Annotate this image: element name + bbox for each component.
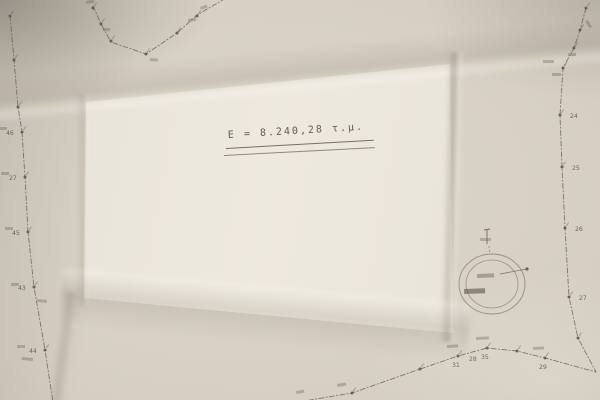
illegible-mark	[150, 58, 158, 62]
illegible-mark	[296, 390, 304, 394]
right-boundary-line	[560, 8, 596, 372]
survey-plan-photo: 46274543442425262731352928 E = 8.240,28 …	[0, 0, 600, 400]
survey-point-tick	[102, 19, 104, 23]
illegible-mark	[476, 336, 489, 340]
survey-point-tick	[459, 351, 461, 355]
survey-point-tick	[23, 127, 25, 131]
detail-illegible-text	[464, 288, 485, 294]
detail-leader-dash	[489, 246, 490, 254]
survey-point-tick	[112, 36, 114, 40]
survey-point-marker	[110, 40, 113, 43]
segment-distance-label: 28	[469, 356, 477, 363]
survey-point-marker	[351, 392, 354, 395]
survey-point-marker	[544, 357, 547, 360]
illegible-mark	[447, 344, 458, 348]
survey-point-marker	[562, 67, 565, 70]
survey-point-label: 44	[29, 348, 37, 355]
survey-point-marker	[561, 166, 564, 169]
survey-point-marker	[486, 347, 489, 350]
survey-point-tick	[94, 3, 96, 7]
survey-point-marker	[13, 59, 16, 62]
survey-point-label: 31	[452, 362, 460, 369]
survey-point-tick	[563, 162, 565, 166]
survey-point-tick	[566, 223, 568, 227]
detail-pointer-dot	[525, 267, 528, 270]
survey-point-tick	[353, 388, 355, 392]
survey-point-marker	[585, 7, 588, 10]
survey-point-marker	[564, 227, 567, 230]
survey-point-marker	[92, 7, 95, 10]
top-boundary-line	[93, 0, 233, 54]
illegible-mark	[22, 357, 33, 361]
survey-point-marker	[9, 15, 12, 18]
survey-point-marker	[33, 286, 36, 289]
detail-circle-outer	[459, 254, 525, 314]
detail-illegible-text	[477, 273, 494, 278]
illegible-mark	[533, 346, 544, 350]
bottom-boundary-line	[298, 348, 596, 400]
illegible-mark	[1, 172, 9, 175]
survey-point-tick	[198, 11, 200, 15]
survey-point-tick	[15, 55, 17, 59]
survey-point-label: 46	[6, 130, 14, 137]
survey-point-marker	[568, 296, 571, 299]
left-boundary-line	[10, 16, 53, 400]
illegible-mark	[0, 127, 7, 130]
survey-point-marker	[44, 349, 47, 352]
survey-point-marker	[176, 32, 179, 35]
survey-point-marker	[24, 176, 27, 179]
survey-point-tick	[570, 292, 572, 296]
survey-point-marker	[457, 355, 460, 358]
survey-point-tick	[488, 343, 490, 347]
survey-point-label: 29	[539, 364, 547, 371]
survey-point-tick	[35, 282, 37, 286]
survey-point-marker	[17, 106, 20, 109]
survey-point-tick	[546, 353, 548, 357]
survey-point-tick	[518, 346, 520, 350]
illegible-mark	[17, 345, 25, 348]
survey-point-label: 45	[12, 230, 20, 237]
illegible-mark	[103, 28, 110, 31]
survey-point-label: 24	[570, 113, 578, 120]
survey-point-tick	[46, 345, 48, 349]
survey-point-label: 27	[579, 295, 587, 302]
survey-point-marker	[27, 231, 30, 234]
survey-point-marker	[579, 29, 582, 32]
survey-point-label: 25	[572, 165, 580, 172]
survey-point-label: 26	[575, 226, 583, 233]
survey-point-marker	[573, 47, 576, 50]
survey-point-marker	[419, 368, 422, 371]
survey-point-marker	[196, 15, 199, 18]
illegible-mark	[337, 382, 346, 387]
survey-point-label: 43	[18, 285, 26, 292]
detail-circle-inner	[466, 260, 518, 308]
survey-point-tick	[421, 364, 423, 368]
survey-point-marker	[100, 23, 103, 26]
illegible-mark	[480, 238, 491, 241]
survey-point-label: 35	[481, 354, 489, 361]
illegible-mark	[86, 0, 94, 4]
survey-point-marker	[577, 337, 580, 340]
survey-point-marker	[559, 114, 562, 117]
survey-point-marker	[516, 350, 519, 353]
survey-point-tick	[19, 102, 21, 106]
survey-point-marker	[21, 131, 24, 134]
survey-point-tick	[26, 172, 28, 176]
illegible-mark	[543, 60, 554, 63]
detail-top-tick-bar	[484, 229, 490, 230]
survey-point-tick	[11, 11, 13, 15]
survey-drawing: 46274543442425262731352928	[0, 0, 600, 400]
illegible-mark	[5, 227, 13, 230]
survey-point-tick	[29, 227, 31, 231]
illegible-mark	[568, 53, 576, 56]
survey-point-marker	[145, 53, 148, 56]
survey-point-label: 27	[9, 175, 17, 182]
illegible-mark	[37, 299, 47, 303]
survey-point-tick	[587, 3, 589, 7]
illegible-mark	[552, 73, 561, 76]
illegible-mark	[11, 283, 19, 286]
illegible-mark	[585, 20, 592, 28]
survey-point-tick	[561, 110, 563, 114]
illegible-mark	[188, 18, 196, 22]
survey-point-tick	[579, 333, 581, 337]
